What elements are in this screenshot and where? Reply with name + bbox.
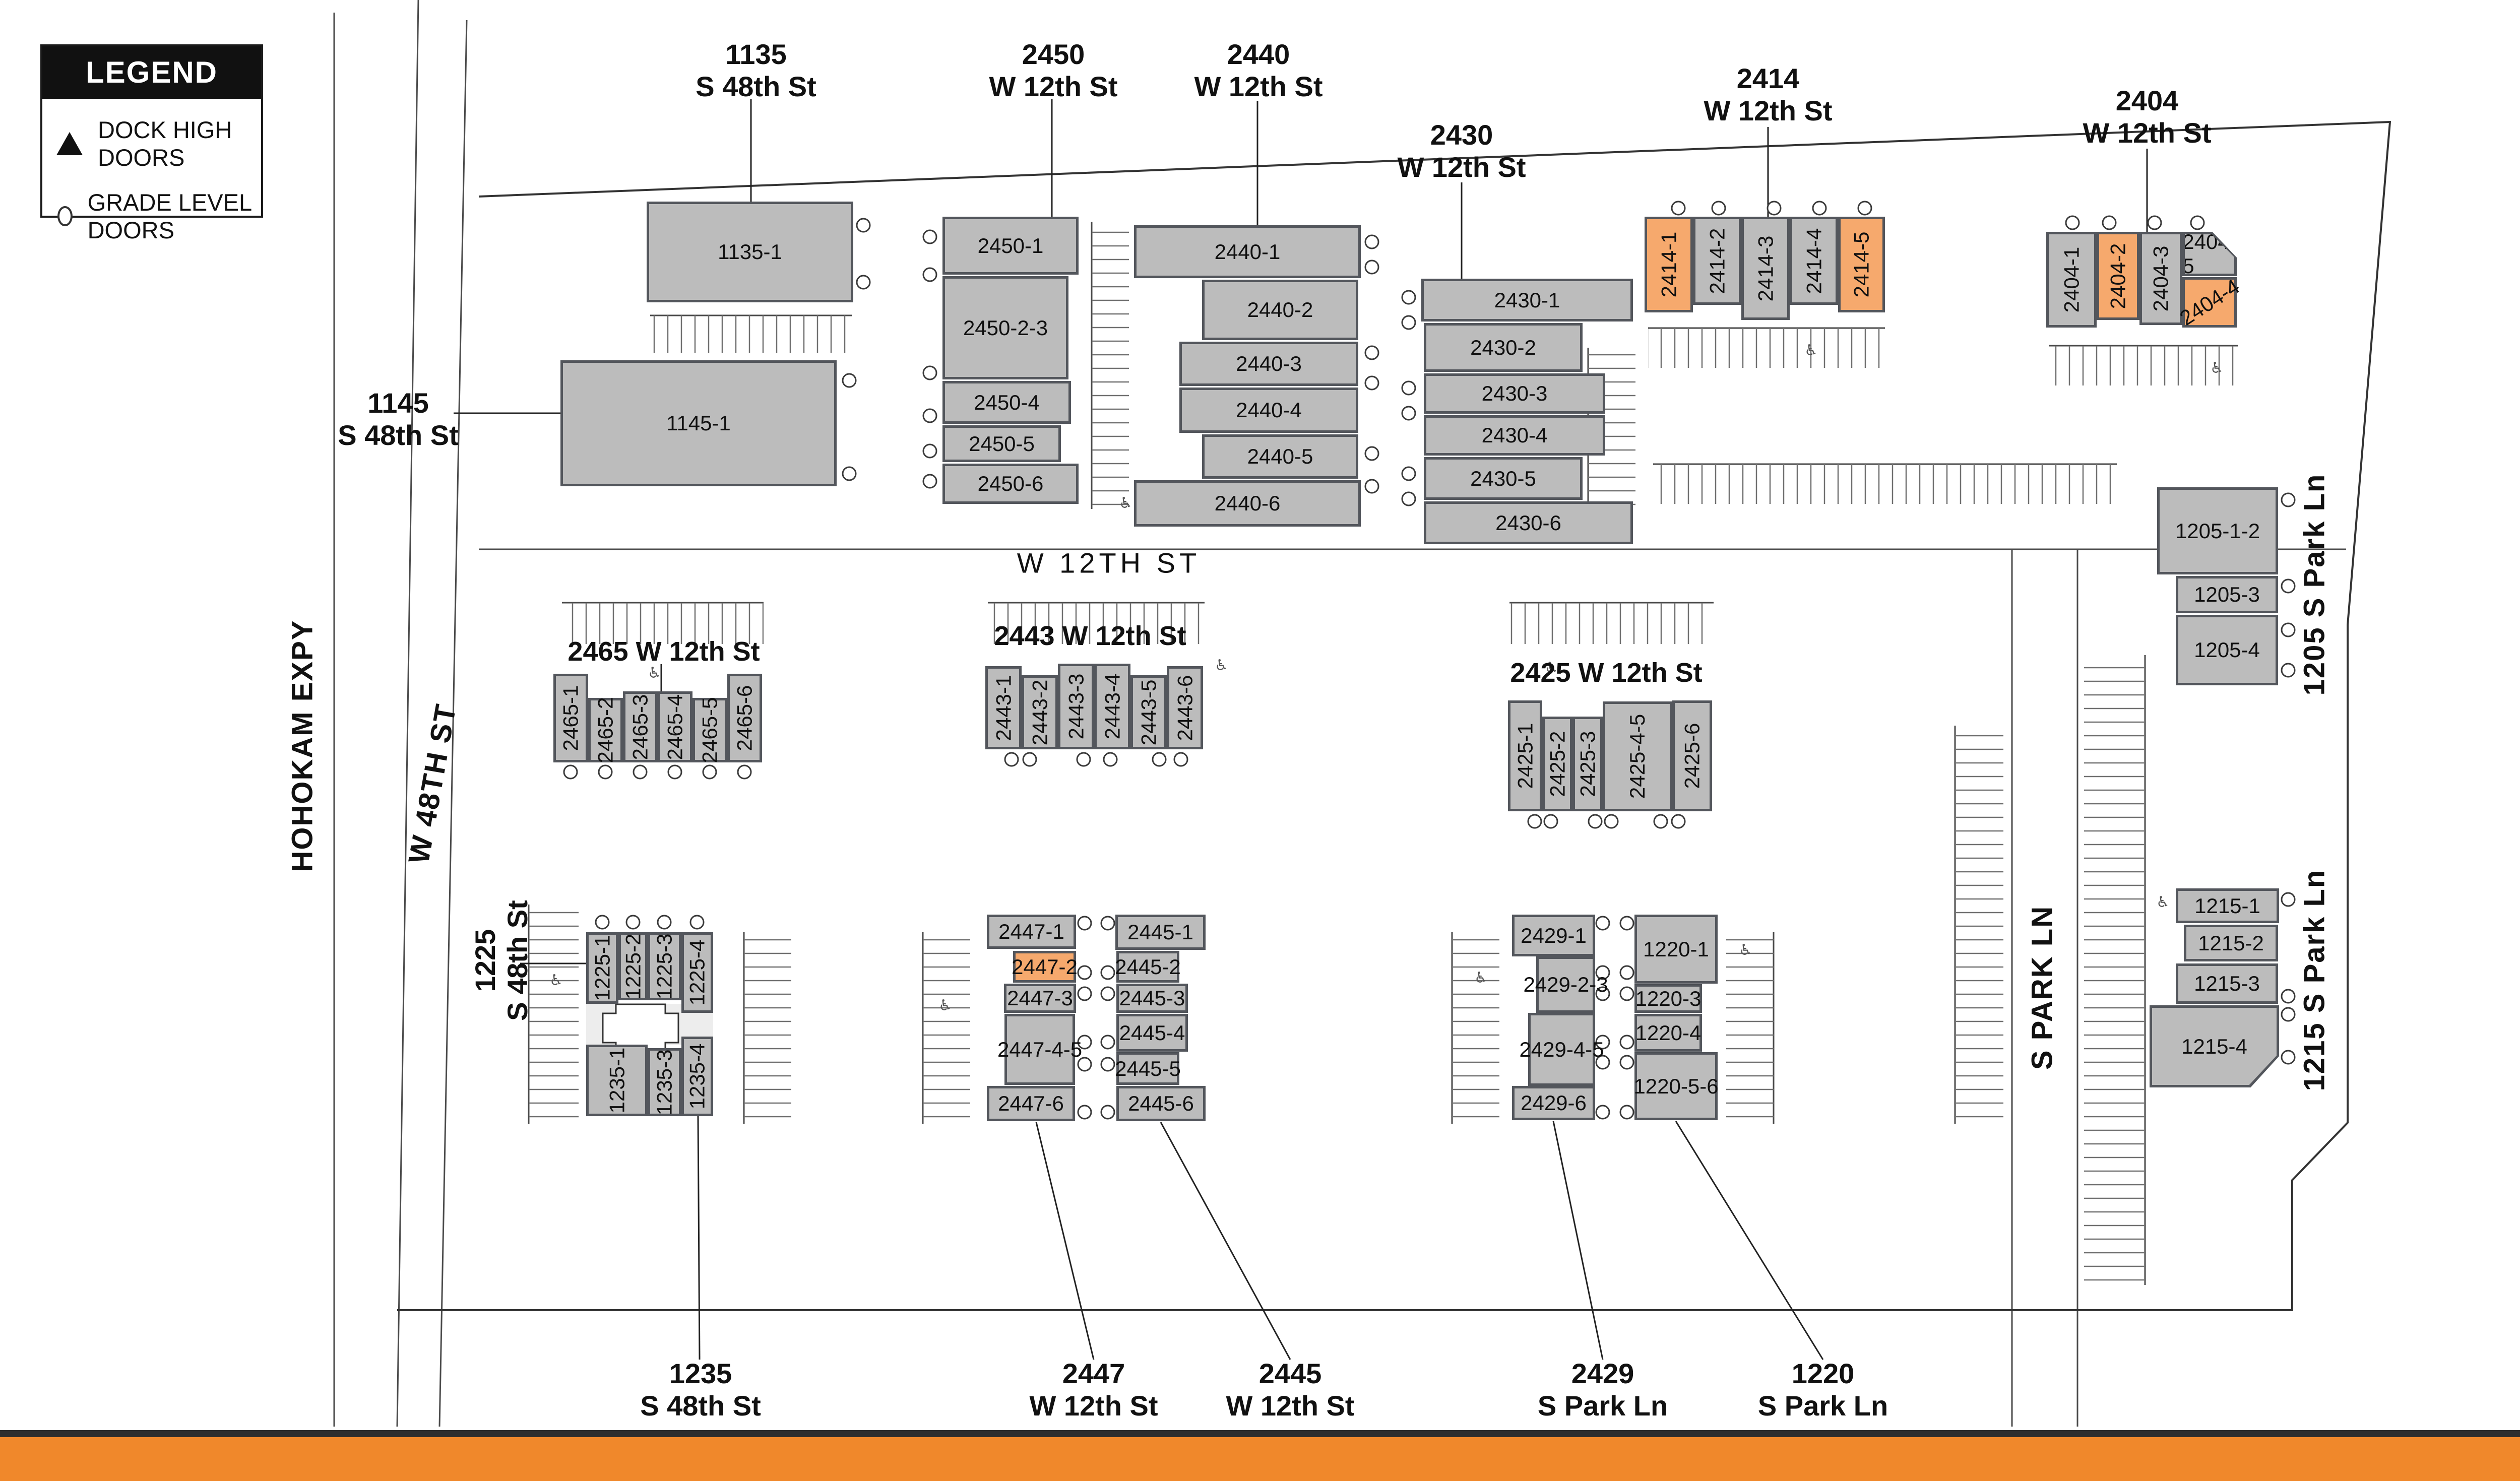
unit-2430-1: 2430-1	[1421, 279, 1633, 321]
unit-1145-1: 1145-1	[560, 360, 837, 486]
unit-2414-1: 2414-1	[1645, 217, 1693, 312]
street-label-1215-s-park-ln: 1215 S Park Ln	[2298, 869, 2332, 1091]
unit-1215-3: 1215-3	[2176, 963, 2278, 1004]
unit-2443-4: 2443-4	[1094, 664, 1130, 749]
address-label-2425: 2425 W 12th St	[1510, 657, 1702, 688]
unit-1235-1: 1235-1	[586, 1045, 648, 1116]
legend-item-grade-level: GRADE LEVEL DOORS	[56, 188, 261, 244]
unit-2450-6: 2450-6	[942, 464, 1079, 504]
site-plan: ♿♿ ♿♿ ♿♿♿ ♿♿ ♿♿♿ LEGEND DOCK HIGH DOORS …	[0, 0, 2520, 1481]
unit-2404-2: 2404-2	[2097, 232, 2139, 320]
unit-2430-3: 2430-3	[1424, 373, 1605, 414]
address-label-1220: 1220S Park Ln	[1758, 1358, 1888, 1422]
unit-2445-4: 2445-4	[1116, 1014, 1188, 1052]
unit-2447-4-5: 2447-4-5	[1004, 1014, 1075, 1085]
unit-2465-3: 2465-3	[623, 691, 658, 762]
street-label-s-park-ln: S PARK LN	[2026, 906, 2059, 1070]
unit-2440-5: 2440-5	[1202, 434, 1358, 479]
unit-2465-6: 2465-6	[727, 674, 762, 762]
unit-1205-1-2: 1205-1-2	[2157, 487, 2278, 574]
street-label-w12th: W 12TH ST	[1017, 547, 1201, 579]
street-label-1205-s-park-ln: 1205 S Park Ln	[2298, 474, 2332, 696]
unit-2429-1: 2429-1	[1512, 915, 1595, 956]
address-label-1135: 1135S 48th St	[696, 38, 816, 103]
address-label-2447: 2447W 12th St	[1029, 1358, 1158, 1422]
unit-2445-2: 2445-2	[1116, 951, 1179, 983]
unit-2414-5: 2414-5	[1838, 217, 1885, 312]
unit-2447-2: 2447-2	[1013, 951, 1076, 983]
unit-2404-1: 2404-1	[2046, 232, 2097, 328]
unit-2450-5: 2450-5	[942, 425, 1061, 462]
unit-2414-2: 2414-2	[1693, 217, 1741, 305]
unit-2440-6: 2440-6	[1134, 480, 1361, 527]
unit-1235-3: 1235-3	[648, 1048, 681, 1116]
unit-2465-4: 2465-4	[658, 691, 692, 762]
svg-text:♿: ♿	[1804, 342, 1818, 359]
legend: LEGEND DOCK HIGH DOORS GRADE LEVEL DOORS	[40, 44, 263, 218]
unit-2429-2-3: 2429-2-3	[1536, 956, 1595, 1013]
svg-text:♿: ♿	[1119, 494, 1132, 512]
unit-2425-6: 2425-6	[1672, 700, 1712, 811]
unit-1220-3: 1220-3	[1634, 984, 1702, 1013]
svg-text:♿: ♿	[2156, 893, 2170, 911]
unit-2445-5: 2445-5	[1116, 1052, 1179, 1085]
unit-1215-2: 1215-2	[2184, 925, 2278, 961]
svg-text:♿: ♿	[2210, 359, 2224, 377]
grade-level-circle-icon	[57, 206, 73, 226]
unit-1220-1: 1220-1	[1634, 915, 1718, 984]
address-label-2429: 2429S Park Ln	[1538, 1358, 1668, 1422]
unit-2443-3: 2443-3	[1058, 664, 1094, 749]
address-label-1225: 1225S 48th St	[469, 900, 534, 1021]
unit-2443-2: 2443-2	[1022, 675, 1058, 749]
site-plan-linework: ♿♿ ♿♿ ♿♿♿ ♿♿ ♿♿♿	[0, 0, 2520, 1481]
address-label-2450: 2450W 12th St	[989, 38, 1117, 103]
unit-1225-2: 1225-2	[618, 932, 648, 1000]
dock-high-triangle-icon	[56, 132, 83, 155]
address-label-1235: 1235S 48th St	[640, 1358, 761, 1422]
address-label-2440: 2440W 12th St	[1194, 38, 1322, 103]
unit-2425-4-5: 2425-4-5	[1603, 701, 1672, 811]
unit-2425-1: 2425-1	[1508, 700, 1542, 811]
unit-2450-1: 2450-1	[942, 217, 1079, 275]
address-label-2404: 2404W 12th St	[2083, 85, 2211, 149]
address-label-1145: 1145S 48th St	[338, 387, 459, 452]
svg-text:♿: ♿	[1474, 969, 1488, 987]
unit-2450-4: 2450-4	[942, 381, 1071, 424]
unit-2429-4-5: 2429-4-5	[1528, 1013, 1595, 1086]
unit-2429-6: 2429-6	[1512, 1086, 1595, 1120]
unit-1235-4: 1235-4	[681, 1037, 713, 1116]
unit-2440-3: 2440-3	[1179, 342, 1358, 386]
unit-2445-3: 2445-3	[1116, 984, 1188, 1013]
address-label-2414: 2414W 12th St	[1704, 62, 1832, 127]
svg-text:♿: ♿	[1215, 657, 1228, 674]
unit-2425-3: 2425-3	[1572, 717, 1603, 811]
unit-2447-1: 2447-1	[987, 915, 1076, 949]
street-label-hohokam: HOHOKAM EXPY	[286, 620, 320, 872]
unit-2450-2-3: 2450-2-3	[942, 276, 1068, 379]
unit-2447-3: 2447-3	[1004, 984, 1076, 1013]
unit-2430-5: 2430-5	[1424, 457, 1583, 500]
svg-text:♿: ♿	[938, 997, 952, 1014]
unit-2440-2: 2440-2	[1202, 280, 1358, 340]
unit-2430-6: 2430-6	[1424, 501, 1633, 544]
unit-2445-1: 2445-1	[1115, 915, 1206, 950]
unit-1135-1: 1135-1	[647, 202, 853, 302]
address-label-2443: 2443 W 12th St	[994, 620, 1186, 652]
unit-1220-5-6: 1220-5-6	[1634, 1052, 1718, 1120]
unit-2430-4: 2430-4	[1424, 415, 1605, 456]
unit-2445-6: 2445-6	[1116, 1086, 1206, 1121]
unit-1215-1: 1215-1	[2176, 888, 2279, 923]
unit-1205-3: 1205-3	[2176, 576, 2278, 613]
unit-2465-2: 2465-2	[588, 698, 623, 762]
unit-2443-6: 2443-6	[1167, 666, 1203, 749]
unit-2447-6: 2447-6	[987, 1086, 1075, 1121]
footer-accent-bar	[0, 1430, 2520, 1481]
unit-2425-2: 2425-2	[1542, 717, 1572, 811]
unit-1220-4: 1220-4	[1634, 1014, 1702, 1052]
unit-1215-4: 1215-4	[2150, 1005, 2279, 1087]
unit-2465-5: 2465-5	[692, 698, 727, 762]
legend-title: LEGEND	[42, 46, 261, 99]
unit-2440-4: 2440-4	[1179, 388, 1358, 433]
unit-1205-4: 1205-4	[2176, 615, 2278, 685]
unit-2404-4: 2404-4	[2182, 277, 2237, 328]
unit-2430-2: 2430-2	[1424, 323, 1583, 372]
unit-1225-4: 1225-4	[681, 932, 713, 1013]
unit-1225-1: 1225-1	[586, 932, 618, 1004]
address-label-2445: 2445W 12th St	[1226, 1358, 1354, 1422]
unit-1225-3: 1225-3	[648, 932, 681, 1000]
unit-2465-1: 2465-1	[553, 674, 588, 762]
svg-text:♿: ♿	[1739, 941, 1752, 959]
unit-2443-1: 2443-1	[985, 666, 1022, 749]
legend-item-dock-high: DOCK HIGH DOORS	[56, 116, 261, 171]
unit-2414-3: 2414-3	[1741, 217, 1790, 320]
address-label-2430: 2430W 12th St	[1397, 119, 1526, 183]
unit-2440-1: 2440-1	[1134, 225, 1361, 278]
unit-2414-4: 2414-4	[1790, 217, 1838, 305]
address-label-2465: 2465 W 12th St	[568, 636, 760, 667]
unit-2443-5: 2443-5	[1130, 675, 1167, 749]
svg-text:♿: ♿	[549, 972, 563, 989]
